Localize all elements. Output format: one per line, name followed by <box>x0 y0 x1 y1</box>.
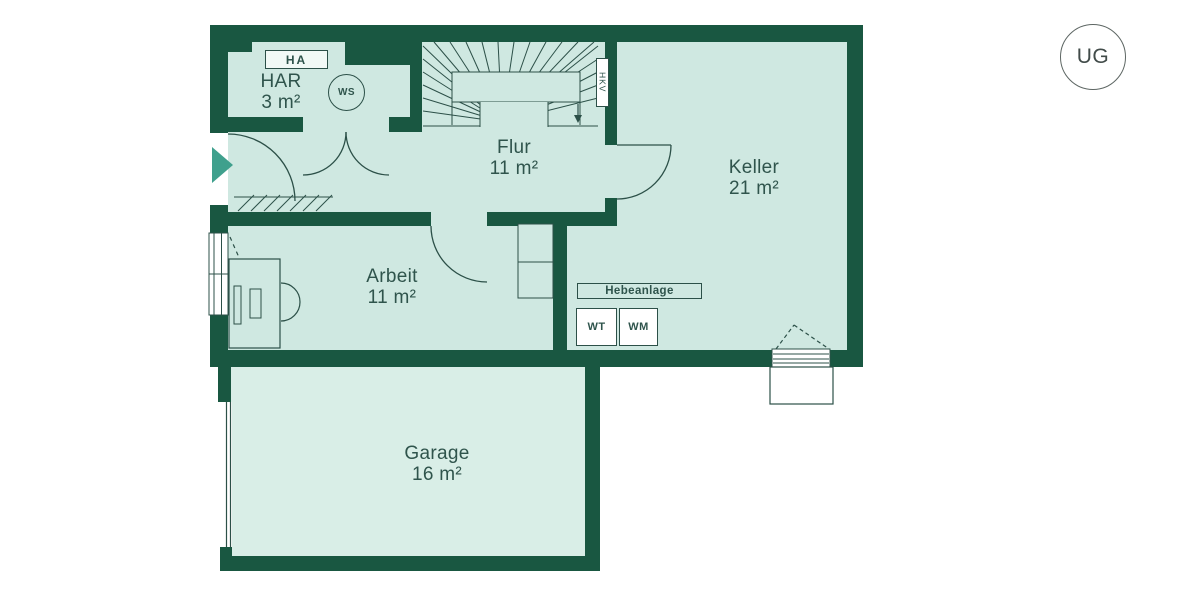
water-softener-circle: WS <box>328 74 365 111</box>
washtub-box: WT <box>576 308 617 346</box>
floorplan-canvas: HAR 3 m² Flur 11 m² Keller 21 m² Arbeit … <box>0 0 1200 600</box>
garage-bottom-wall <box>220 556 600 571</box>
arbeit-window <box>209 233 228 315</box>
wall-flur-arbeit-left <box>228 212 431 226</box>
wall-har-top-right-stub <box>345 42 412 65</box>
lifting-station-box: Hebeanlage <box>577 283 702 299</box>
garage-structure <box>218 367 600 571</box>
garage-bottom-left-stub <box>220 547 232 571</box>
wall-arbeit-keller <box>553 226 567 350</box>
keller-window <box>772 349 830 367</box>
wall-har-bottom-left <box>228 117 303 132</box>
light-well <box>770 367 833 404</box>
garage-right-wall <box>585 367 600 571</box>
garage-interior <box>231 367 585 556</box>
wall-har-stairs <box>410 42 422 125</box>
wall-har-top-left-stub <box>228 42 252 52</box>
shelf-upper <box>518 224 553 262</box>
house-connection-box: HA <box>265 50 328 69</box>
stair-landing <box>452 72 580 102</box>
washing-machine-box: WM <box>619 308 658 346</box>
stair-void <box>480 102 548 127</box>
garage-top-left-stub <box>218 367 231 402</box>
shelf-lower <box>518 262 553 298</box>
heating-circuit-distributor-box: HKV <box>596 58 609 107</box>
desk <box>229 259 280 348</box>
floor-badge: UG <box>1060 24 1126 90</box>
